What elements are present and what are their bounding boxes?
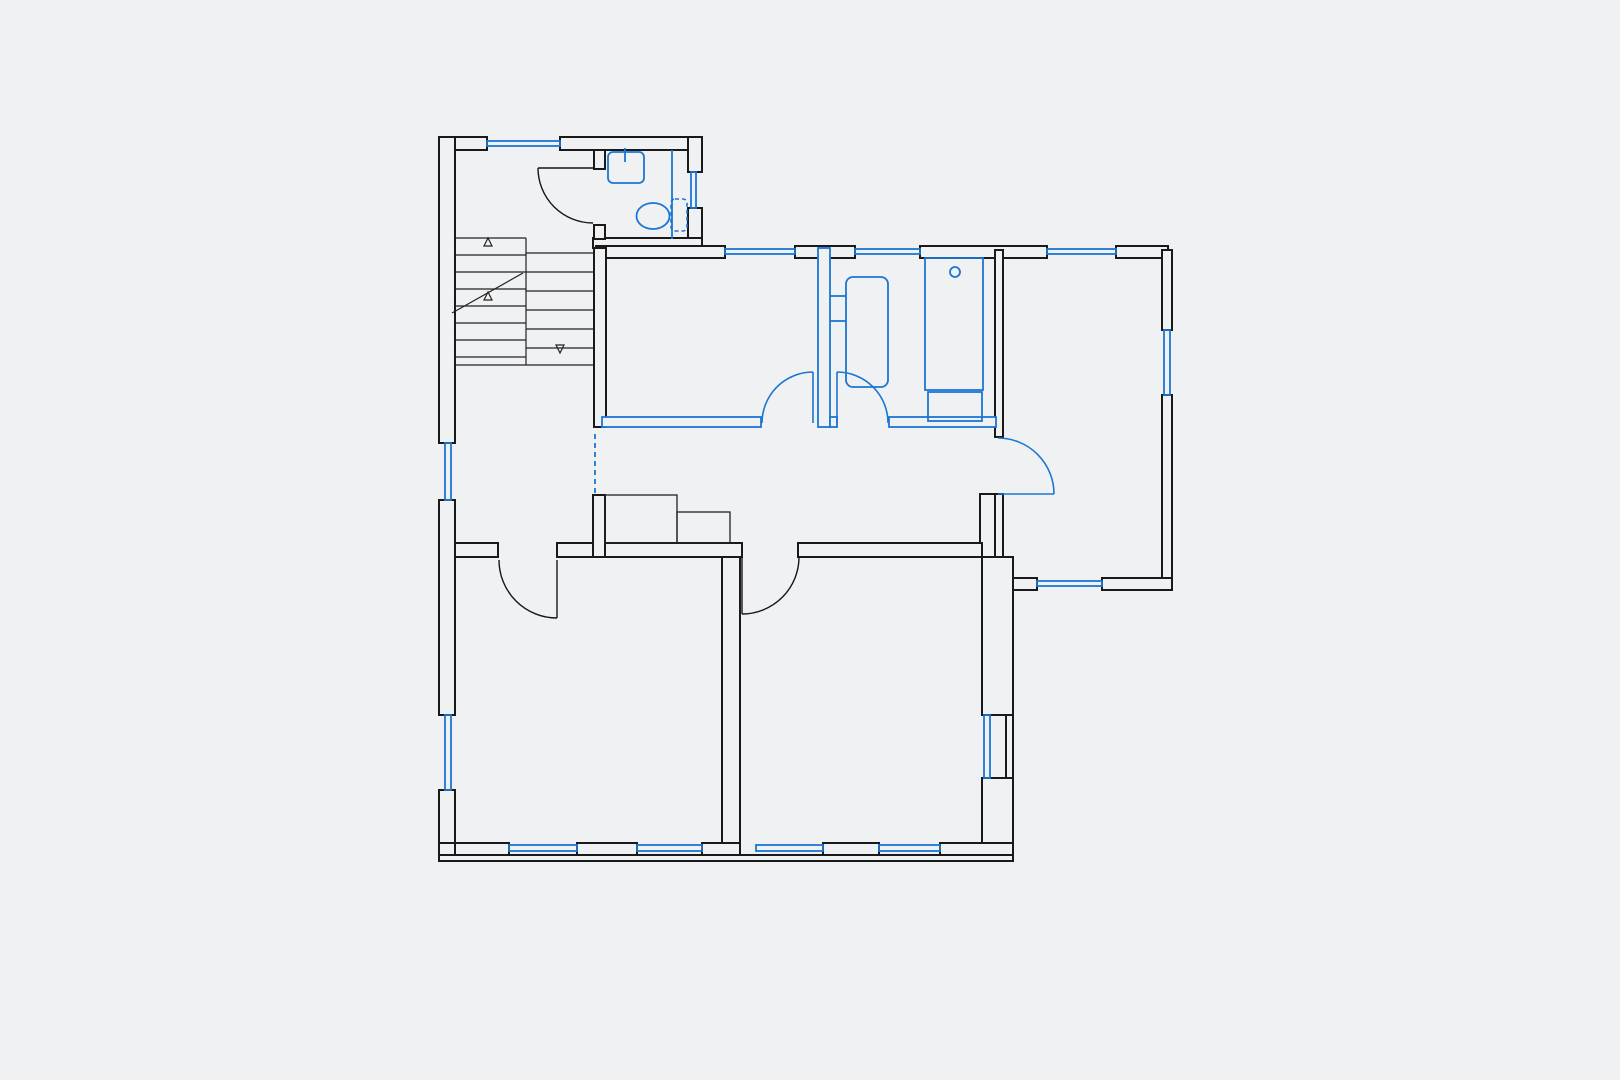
door-bathroom-arc bbox=[837, 372, 888, 423]
room-right-south-b bbox=[1102, 578, 1172, 590]
stair-arrow-up-2 bbox=[484, 292, 492, 300]
partition-mid-bath bbox=[818, 248, 830, 427]
corridor-cabinet-tall bbox=[605, 495, 677, 543]
bath-south-stub bbox=[830, 417, 837, 427]
se-east-wall-outer bbox=[1006, 715, 1013, 778]
window-top-hall bbox=[487, 141, 560, 146]
east-wall-2 bbox=[1162, 395, 1172, 588]
window-room-right-south bbox=[1037, 581, 1102, 586]
room-mid-south-wall bbox=[602, 417, 761, 427]
door-room-bottom-right-arc bbox=[742, 557, 799, 614]
west-wall-1 bbox=[439, 137, 455, 443]
window-south-1 bbox=[509, 845, 577, 851]
door-room-mid-arc bbox=[762, 372, 813, 423]
west-wall-2 bbox=[439, 500, 455, 715]
sink-icon bbox=[608, 152, 644, 183]
south-pier-1 bbox=[455, 843, 509, 855]
window-room-right-north bbox=[1047, 249, 1116, 254]
top-wall-right bbox=[560, 137, 702, 150]
window-west-hall bbox=[445, 443, 451, 500]
toilet-icon bbox=[637, 203, 670, 229]
bottom-rooms-north-a bbox=[455, 543, 498, 557]
wc-east-wall-1 bbox=[688, 137, 702, 172]
window-room-right-east bbox=[1164, 330, 1170, 395]
bottom-rooms-north-b bbox=[557, 543, 742, 557]
door-room-bottom-left-arc bbox=[499, 560, 557, 618]
floor-plan-canvas bbox=[0, 0, 1620, 1080]
east-wall-1 bbox=[1162, 250, 1172, 330]
bottom-rooms-north-c bbox=[798, 543, 982, 557]
radiator-icon bbox=[846, 277, 888, 387]
south-pier-2 bbox=[577, 843, 637, 855]
south-pier-3 bbox=[702, 843, 740, 855]
window-south-3 bbox=[756, 845, 823, 851]
stair-arrow-down bbox=[556, 345, 564, 353]
wc-west-wall-1 bbox=[594, 150, 605, 169]
window-west-bottom-room bbox=[445, 715, 451, 790]
hall-corridor-stub bbox=[593, 495, 605, 557]
bottom-rooms-divider bbox=[722, 557, 740, 843]
window-room-mid-north bbox=[725, 249, 795, 254]
door-room-right-arc bbox=[998, 438, 1054, 494]
north-wall-d bbox=[1116, 246, 1168, 258]
room-right-west-2 bbox=[995, 494, 1003, 557]
bath-south-wall bbox=[889, 417, 996, 427]
north-wall-a bbox=[596, 246, 725, 258]
window-south-4 bbox=[879, 845, 940, 851]
room-mid-west-wall bbox=[594, 248, 606, 427]
south-pier-4 bbox=[823, 843, 879, 855]
south-pier-corner bbox=[439, 843, 455, 855]
wc-west-wall-2 bbox=[594, 225, 605, 239]
window-wc-east bbox=[691, 172, 696, 208]
window-south-2 bbox=[637, 845, 702, 851]
south-pier-5 bbox=[940, 843, 1013, 855]
stair-arrow-up-1 bbox=[484, 238, 492, 246]
window-se-east bbox=[984, 715, 990, 778]
corridor-cabinet-low bbox=[677, 512, 730, 543]
floor-plan bbox=[0, 0, 1620, 1080]
window-bath-north bbox=[855, 249, 920, 254]
toilet-cistern-icon bbox=[671, 199, 687, 231]
door-wc-arc bbox=[538, 168, 593, 223]
room-right-west-1 bbox=[995, 250, 1003, 437]
north-wall-c bbox=[920, 246, 1047, 258]
se-east-wall-1 bbox=[982, 557, 1013, 715]
shower-drain-icon bbox=[950, 267, 960, 277]
